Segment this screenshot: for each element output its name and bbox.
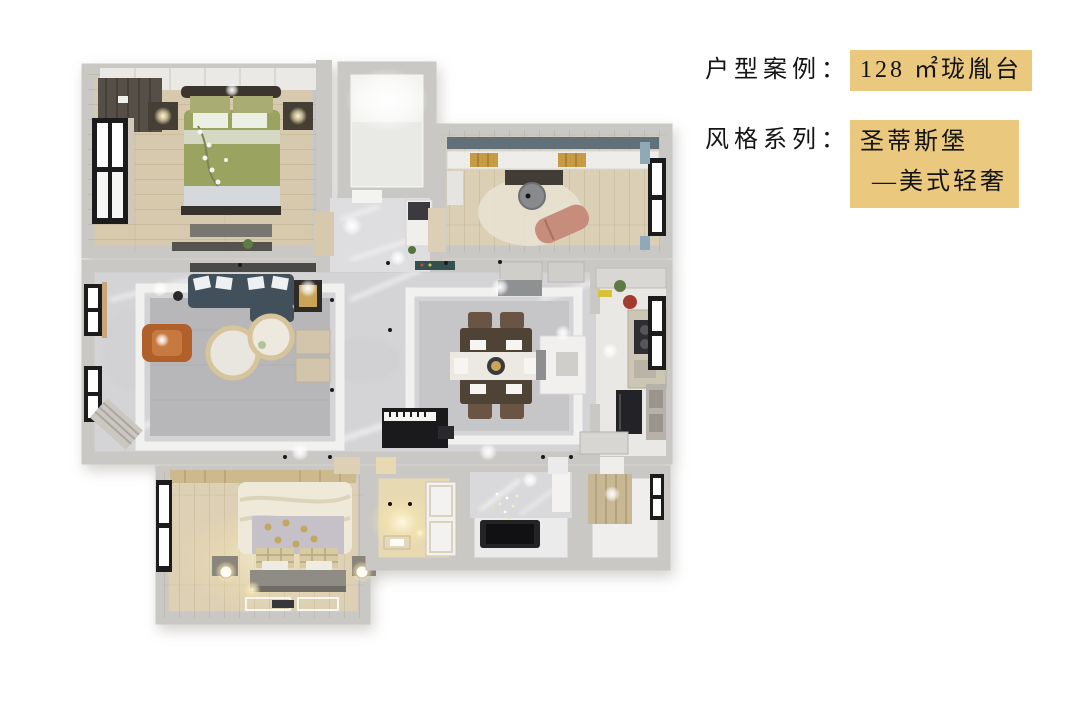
living-window bbox=[84, 282, 107, 338]
room-master-bedroom bbox=[88, 68, 318, 252]
tv-console bbox=[172, 242, 272, 251]
bedroom2-window bbox=[156, 480, 172, 572]
lace-pillow bbox=[193, 113, 228, 128]
ac-dot bbox=[421, 264, 424, 267]
room-bathroom bbox=[468, 472, 574, 564]
foot-mat bbox=[272, 600, 294, 608]
tub-interior bbox=[486, 524, 534, 544]
dining-cabinet bbox=[500, 262, 542, 282]
room-nook bbox=[370, 472, 456, 564]
style-series-subtitle: —美式轻奢 bbox=[860, 162, 1007, 202]
headboard-edge bbox=[250, 586, 346, 592]
plant bbox=[408, 246, 416, 254]
ac-dot bbox=[429, 264, 432, 267]
curtain bbox=[640, 142, 650, 164]
coffee-table bbox=[250, 316, 292, 358]
curtain bbox=[640, 236, 650, 250]
study-top-cabinet bbox=[447, 137, 659, 149]
case-row: 户型案例：128 ㎡珑胤台 bbox=[705, 50, 1032, 91]
style-series-name: 圣蒂斯堡 bbox=[860, 122, 1007, 162]
utility-light bbox=[604, 486, 620, 502]
style-label: 风格系列： bbox=[705, 120, 850, 157]
downlight bbox=[388, 502, 392, 506]
lamp bbox=[220, 566, 232, 578]
room-study bbox=[440, 130, 666, 252]
plant bbox=[243, 239, 253, 249]
bathroom-door bbox=[552, 472, 570, 512]
style-row: 风格系列：圣蒂斯堡—美式轻奢 bbox=[705, 120, 1019, 208]
room-balcony bbox=[344, 68, 430, 194]
red-plate bbox=[623, 295, 637, 309]
cabinet-recess bbox=[649, 390, 663, 408]
study-side-cabinet bbox=[447, 171, 463, 205]
headboard-2 bbox=[250, 570, 346, 586]
door-utility bbox=[600, 457, 624, 474]
room-utility bbox=[586, 472, 664, 564]
downlight bbox=[408, 502, 412, 506]
door-bathroom bbox=[548, 457, 568, 474]
piano bbox=[382, 408, 454, 448]
lamp-glow bbox=[289, 107, 307, 125]
kitchen-lower-cabinet bbox=[580, 432, 628, 454]
floor-plan-image bbox=[0, 0, 1080, 703]
foyer-shelf bbox=[408, 202, 430, 220]
floor-plan-root bbox=[84, 60, 666, 618]
room-foyer bbox=[330, 198, 432, 272]
pendant-lamp bbox=[526, 194, 531, 199]
room-bedroom-2 bbox=[156, 470, 376, 618]
table-plant bbox=[258, 341, 266, 349]
bed-bench bbox=[190, 224, 272, 237]
ottoman bbox=[296, 330, 330, 354]
cabinet-recess bbox=[649, 414, 663, 432]
island-chair bbox=[536, 350, 546, 380]
bed-2 bbox=[238, 482, 352, 592]
door-nook bbox=[376, 457, 396, 474]
desk-chair bbox=[519, 183, 545, 209]
bed-foot-sheet bbox=[184, 186, 280, 208]
kitchen-window bbox=[648, 296, 666, 370]
bath-light bbox=[522, 472, 538, 488]
wall-console bbox=[190, 263, 316, 272]
curtain-band bbox=[170, 470, 356, 483]
page: 户型案例：128 ㎡珑胤台 风格系列：圣蒂斯堡—美式轻奢 bbox=[0, 0, 1080, 703]
lamp-glow bbox=[154, 107, 172, 125]
floor-lamp bbox=[152, 281, 168, 297]
spotlight bbox=[225, 83, 239, 97]
footboard bbox=[181, 206, 281, 215]
style-value-highlight: 圣蒂斯堡—美式轻奢 bbox=[850, 120, 1019, 208]
book bbox=[390, 539, 404, 546]
pillow bbox=[233, 96, 273, 113]
case-label: 户型案例： bbox=[705, 50, 850, 87]
case-value-highlight: 128 ㎡珑胤台 bbox=[850, 50, 1032, 91]
door-balcony bbox=[352, 190, 382, 203]
closet-item bbox=[118, 96, 128, 103]
side-table bbox=[173, 291, 183, 301]
door-bedroom2 bbox=[334, 457, 360, 474]
lace-pillow bbox=[232, 113, 267, 128]
pillow bbox=[190, 96, 230, 113]
plant bbox=[614, 280, 626, 292]
yellow-sign bbox=[598, 290, 612, 297]
door-study bbox=[428, 208, 446, 252]
balcony-light bbox=[345, 68, 429, 132]
master-window bbox=[92, 118, 134, 224]
ottoman bbox=[296, 358, 330, 382]
island-top-item bbox=[556, 352, 578, 376]
utility-window bbox=[650, 474, 664, 520]
study-window bbox=[648, 158, 666, 236]
kitchen-upper-cabinets bbox=[596, 268, 666, 288]
door-master bbox=[314, 212, 334, 256]
dining-furniture bbox=[382, 261, 586, 448]
dining-cabinet bbox=[548, 262, 584, 282]
